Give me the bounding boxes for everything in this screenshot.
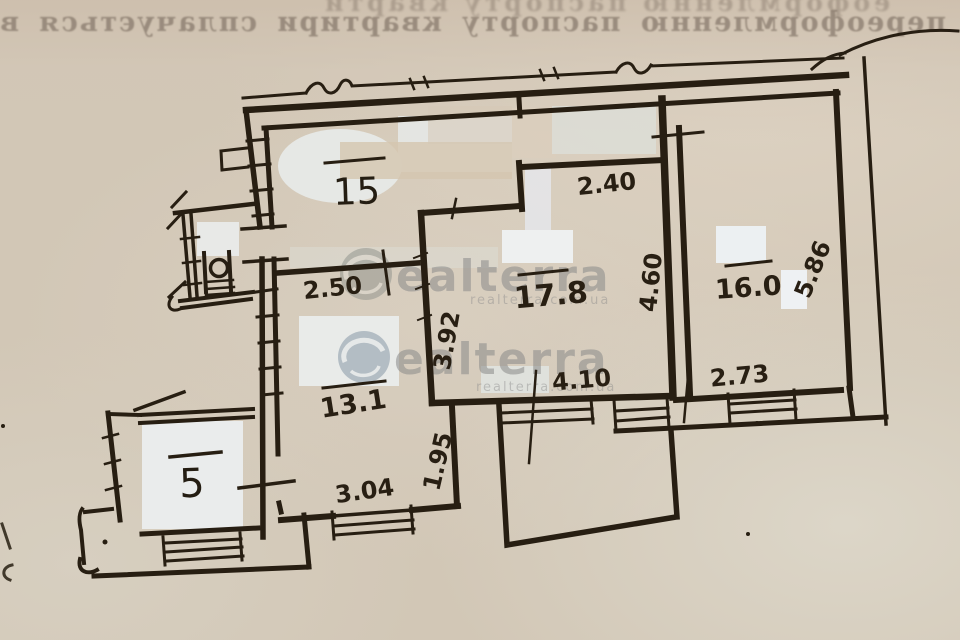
room-label-16-0: 16.0: [714, 270, 783, 306]
scanned-floor-plan-page: еоформленню паспорту кварти переоформлен…: [0, 0, 960, 640]
dimension-label-1-95: 1.95: [418, 429, 459, 493]
dimension-label-2-40: 2.40: [576, 167, 638, 201]
dimension-label-5-86: 5.86: [789, 237, 837, 302]
boiler-fixture-icon: [204, 252, 234, 295]
window-passage: [614, 397, 669, 431]
door-swing: [135, 392, 184, 410]
wall-16-right: [836, 92, 850, 388]
room-label-13-1: 13.1: [318, 384, 389, 425]
dimension-label-2-73: 2.73: [709, 360, 770, 393]
wall-16-bottom: [676, 390, 841, 400]
wall-17-top: [421, 206, 520, 213]
wall-17-right: [662, 99, 673, 397]
room-label-17-8: 17.8: [513, 275, 590, 316]
room-label-15: 15: [332, 169, 381, 214]
dimension-label-4-60: 4.60: [634, 251, 668, 313]
dimension-label-4-10: 4.10: [551, 364, 612, 397]
door-jamb-ticks: [239, 226, 294, 488]
wall-16-left: [679, 128, 690, 394]
wall-17-bottom: [432, 396, 672, 403]
wall-left-inner: [266, 128, 281, 512]
dimension-label-2-50: 2.50: [302, 271, 364, 305]
wall-left-outer: [246, 110, 263, 537]
room-label-5: 5: [178, 461, 205, 508]
floor-plan-drawing: ealterra realterra.com.ua ealterra realt…: [0, 0, 960, 640]
dimension-label-3-04: 3.04: [333, 473, 396, 509]
windows: [163, 390, 796, 565]
erasure-patches: [142, 106, 807, 529]
right-boundary-line: [864, 58, 886, 424]
window-room5: [163, 533, 243, 565]
edge-fragments: [2, 524, 12, 580]
wall-tab: [221, 148, 248, 170]
wall-room15-right-fragment: [519, 99, 520, 116]
